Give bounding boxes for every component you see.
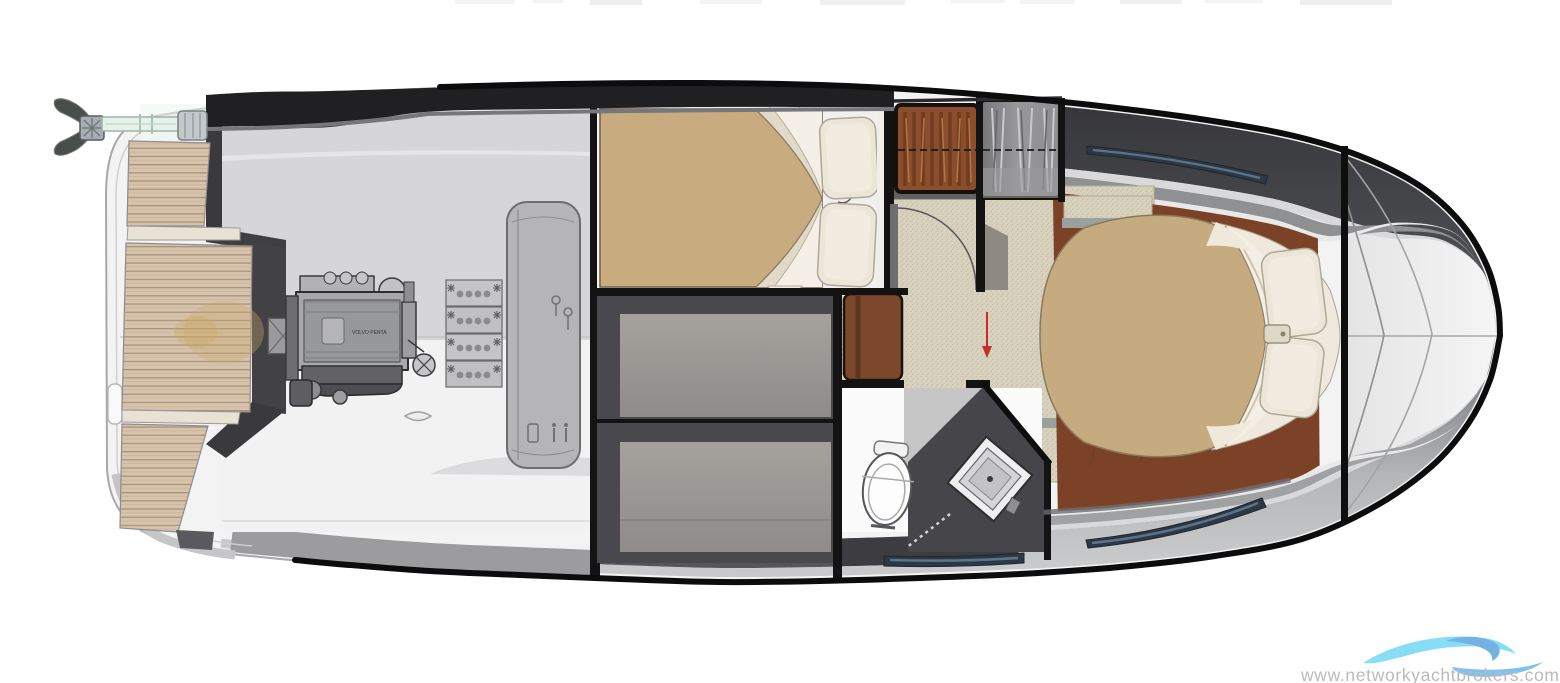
svg-text:VOLVO PENTA: VOLVO PENTA [352, 330, 387, 336]
svg-text:www.networkyachtbrokers.com: www.networkyachtbrokers.com [1300, 665, 1559, 683]
